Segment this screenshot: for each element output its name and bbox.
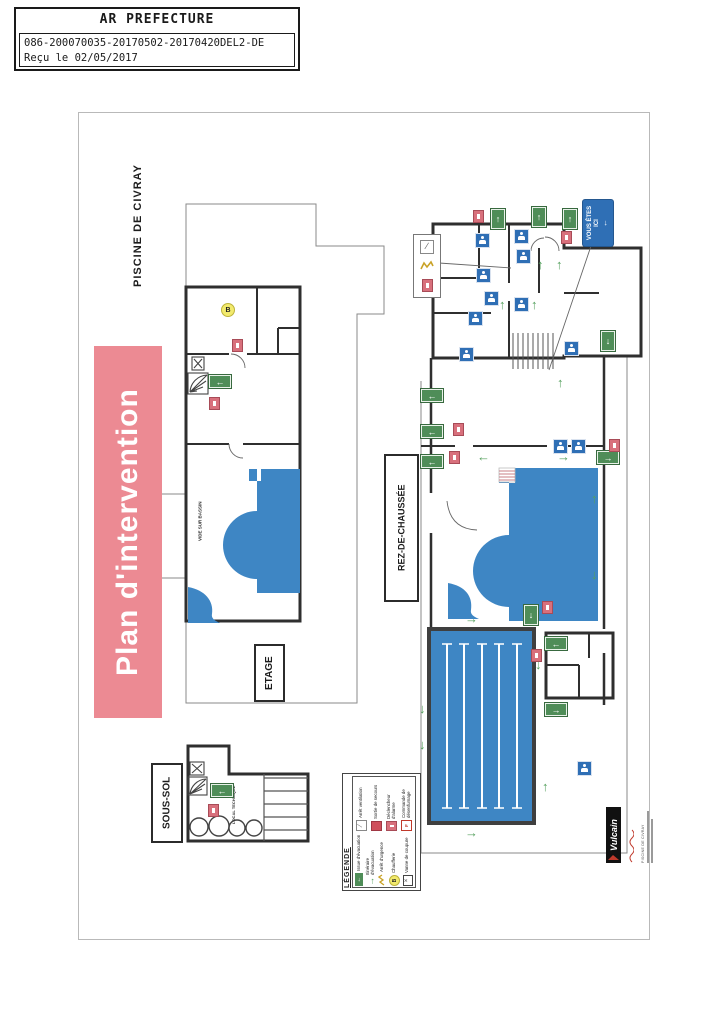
prefecture-stamp: AR PREFECTURE 086-200070035-20170502-201…	[14, 7, 300, 71]
logo-smallprint-line	[647, 811, 649, 863]
signature-scribble	[628, 823, 634, 863]
evac-arrow-icon	[477, 451, 490, 463]
pool-steps	[499, 468, 515, 482]
facility-picto-icon	[475, 233, 490, 248]
legend-row: Déclencheur d'alarme	[386, 778, 397, 831]
valve-icon	[403, 875, 413, 886]
title-banner: Plan d'intervention	[94, 346, 162, 718]
site-name: PISCINE DE CIVRAY	[127, 159, 149, 293]
evac-arrow-icon	[542, 781, 549, 793]
evac-arrow-icon	[591, 493, 598, 505]
vulcain-logo: Vulcain PISCINE DE CIVRAY	[606, 797, 646, 863]
ventilation-cutoff-icon	[420, 240, 434, 254]
evac-arrow-icon	[537, 259, 544, 271]
logo-caption: PISCINE DE CIVRAY	[641, 797, 645, 863]
evac-arrow-icon	[499, 299, 506, 311]
evac-arrow-icon	[591, 569, 598, 581]
legend-row: Vanne de coupure	[403, 833, 413, 886]
page-title: Plan d'intervention	[94, 346, 162, 718]
exit-sign-icon	[545, 637, 567, 650]
facility-picto-icon	[516, 249, 531, 264]
evac-arrow-icon	[465, 613, 478, 625]
legend-row: Itinéraire d'évacuation	[366, 833, 376, 886]
extinguisher-icon	[449, 451, 460, 464]
legend-row: FCommande de désenfumage	[401, 778, 412, 831]
legend-title: LÉGENDE	[344, 776, 351, 888]
exit-sign-icon	[355, 873, 363, 886]
exit-sign-icon	[211, 784, 233, 797]
ventilation-icon	[356, 820, 367, 831]
legend-row: Sortie de secours	[371, 778, 382, 831]
evac-arrow-icon	[419, 739, 426, 751]
evac-arrow-icon	[557, 451, 570, 463]
extinguisher-icon	[609, 439, 620, 452]
extinguisher-icon	[542, 601, 553, 614]
plan-sheet: Plan d'intervention PISCINE DE CIVRAY ET…	[78, 112, 650, 940]
extinguisher-icon	[453, 423, 464, 436]
exit-sign-icon	[545, 703, 567, 716]
facility-picto-icon	[514, 229, 529, 244]
green-arrow-icon	[366, 877, 376, 886]
exit-sign-icon	[421, 455, 443, 468]
facility-picto-icon	[476, 268, 491, 283]
legend-row: BChaufferie	[389, 833, 400, 886]
legend-row: Arrêt ventilation	[356, 778, 367, 831]
stamp-title: AR PREFECTURE	[16, 9, 298, 27]
soussol-outline	[188, 746, 308, 841]
facility-picto-icon	[484, 291, 499, 306]
stamp-body: 086-200070035-20170502-20170420DEL2-DE R…	[19, 33, 295, 67]
exit-sign-icon	[209, 375, 231, 388]
red-square-icon	[371, 821, 382, 831]
b-circle-icon: B	[389, 875, 400, 886]
you-are-here-arrow-icon	[601, 219, 609, 227]
facility-picto-icon	[468, 311, 483, 326]
rdc-leisure-pool	[473, 468, 598, 621]
electric-zigzag-icon	[419, 260, 435, 272]
vide-sur-bassin-label: VIDE SUR BASSIN	[195, 485, 205, 557]
legend-grid: Issue d'évacuation Itinéraire d'évacuati…	[352, 776, 416, 888]
logo-smallprint-line	[651, 819, 653, 863]
evac-arrow-icon	[556, 259, 563, 271]
evac-arrow-icon	[557, 377, 564, 389]
utility-cutoff-box	[413, 234, 441, 298]
exit-sign-icon	[421, 425, 443, 438]
stamp-received-date: Reçu le 02/05/2017	[24, 51, 290, 66]
scanned-intervention-plan-page: { "stamp": { "title": "AR PREFECTURE", "…	[0, 0, 725, 1024]
extinguisher-icon	[209, 397, 220, 410]
evac-arrow-icon	[535, 659, 542, 671]
exit-sign-icon	[597, 451, 619, 464]
evac-arrow-icon	[465, 827, 478, 839]
evac-arrow-icon	[419, 703, 426, 715]
b-marker-icon: B	[221, 303, 235, 317]
exit-sign-icon	[563, 209, 577, 229]
legend-row: Arrêt d'urgence	[378, 833, 386, 886]
floor-label-etage: ETAGE	[254, 644, 285, 702]
smoke-control-icon: F	[401, 820, 412, 831]
extinguisher-icon	[561, 231, 572, 244]
you-are-here-sign: VOUS ÊTES ICI	[582, 199, 614, 247]
zigzag-icon	[378, 874, 386, 886]
facility-picto-icon	[514, 297, 529, 312]
floor-label-soussol: SOUS-SOL	[151, 763, 183, 843]
exit-sign-icon	[601, 331, 615, 351]
facility-picto-icon	[564, 341, 579, 356]
legend: LÉGENDE Issue d'évacuation Itinéraire d'…	[342, 773, 421, 891]
exit-sign-icon	[532, 207, 546, 227]
stamp-reference: 086-200070035-20170502-20170420DEL2-DE	[24, 36, 290, 51]
extinguisher-icon	[473, 210, 484, 223]
floor-label-rdc: REZ-DE-CHAUSSÉE	[384, 454, 419, 602]
extinguisher-icon	[232, 339, 243, 352]
vulcain-logo-box: Vulcain	[606, 807, 621, 863]
evac-arrow-icon	[531, 299, 538, 311]
exit-sign-icon	[524, 605, 538, 625]
exit-sign-icon	[491, 209, 505, 229]
you-are-here-text: VOUS ÊTES ICI	[587, 203, 601, 243]
facility-picto-icon	[577, 761, 592, 776]
extinguisher-icon	[208, 804, 219, 817]
exit-sign-icon	[421, 389, 443, 402]
legend-row: Issue d'évacuation	[355, 833, 363, 886]
facility-picto-icon	[571, 439, 586, 454]
extinguisher-icon	[386, 821, 397, 831]
extinguisher-icon	[422, 279, 433, 292]
facility-picto-icon	[459, 347, 474, 362]
